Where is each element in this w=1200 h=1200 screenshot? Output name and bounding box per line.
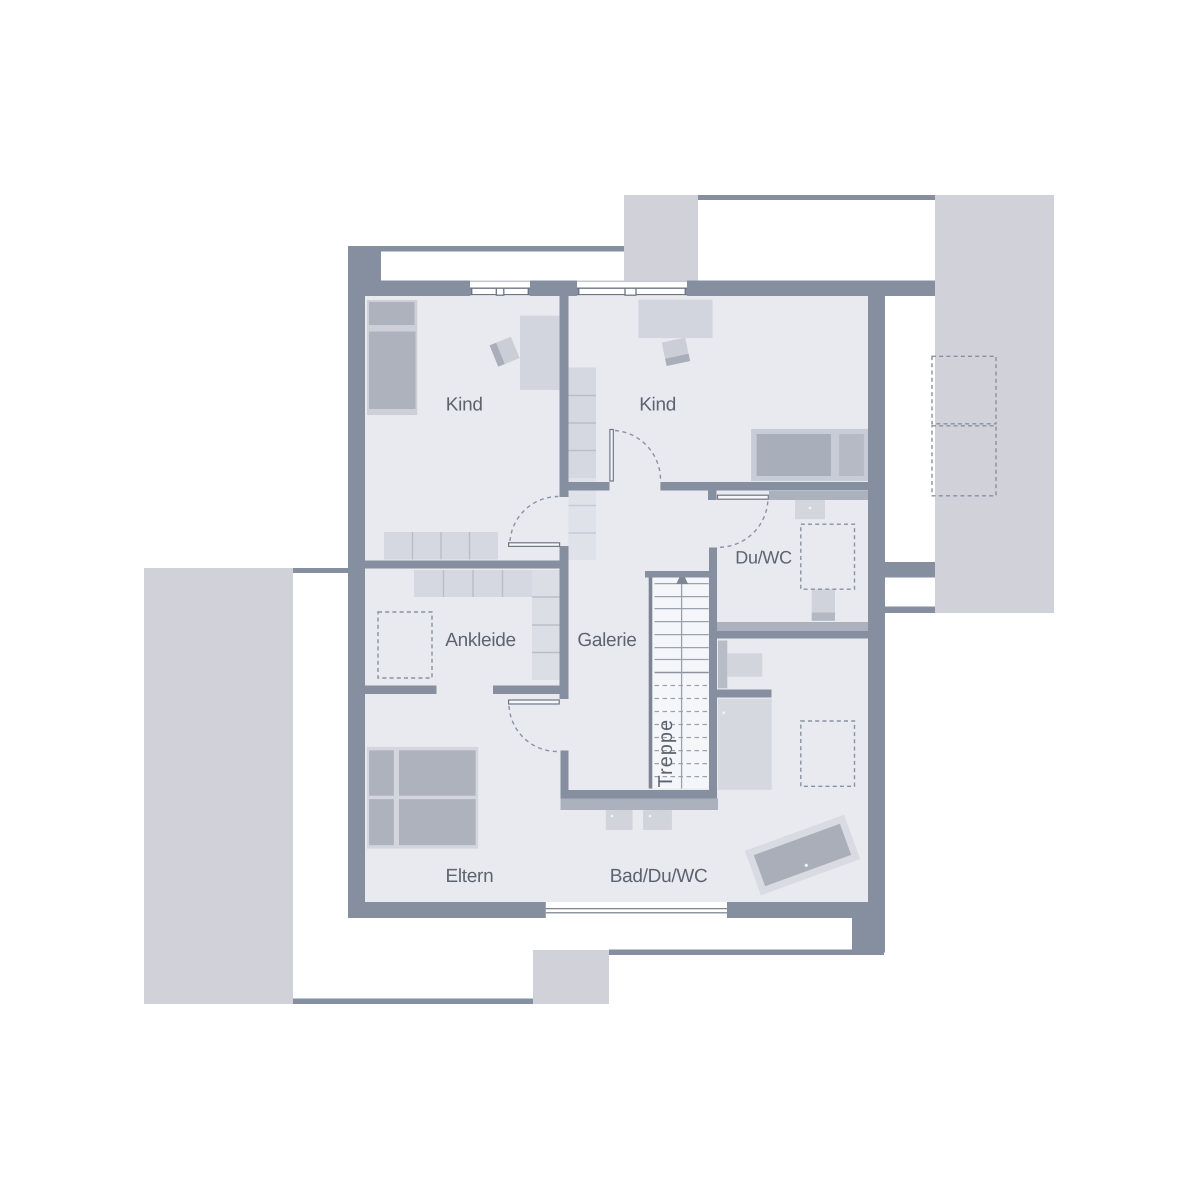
svg-text:Galerie: Galerie [577, 630, 636, 651]
svg-text:Ankleide: Ankleide [445, 630, 515, 651]
svg-text:Du/WC: Du/WC [735, 548, 792, 568]
svg-text:Bad/Du/WC: Bad/Du/WC [610, 866, 708, 887]
svg-text:Treppe: Treppe [655, 719, 677, 788]
svg-text:Kind: Kind [446, 394, 483, 415]
svg-text:Eltern: Eltern [446, 866, 494, 887]
svg-text:Kind: Kind [639, 394, 676, 415]
